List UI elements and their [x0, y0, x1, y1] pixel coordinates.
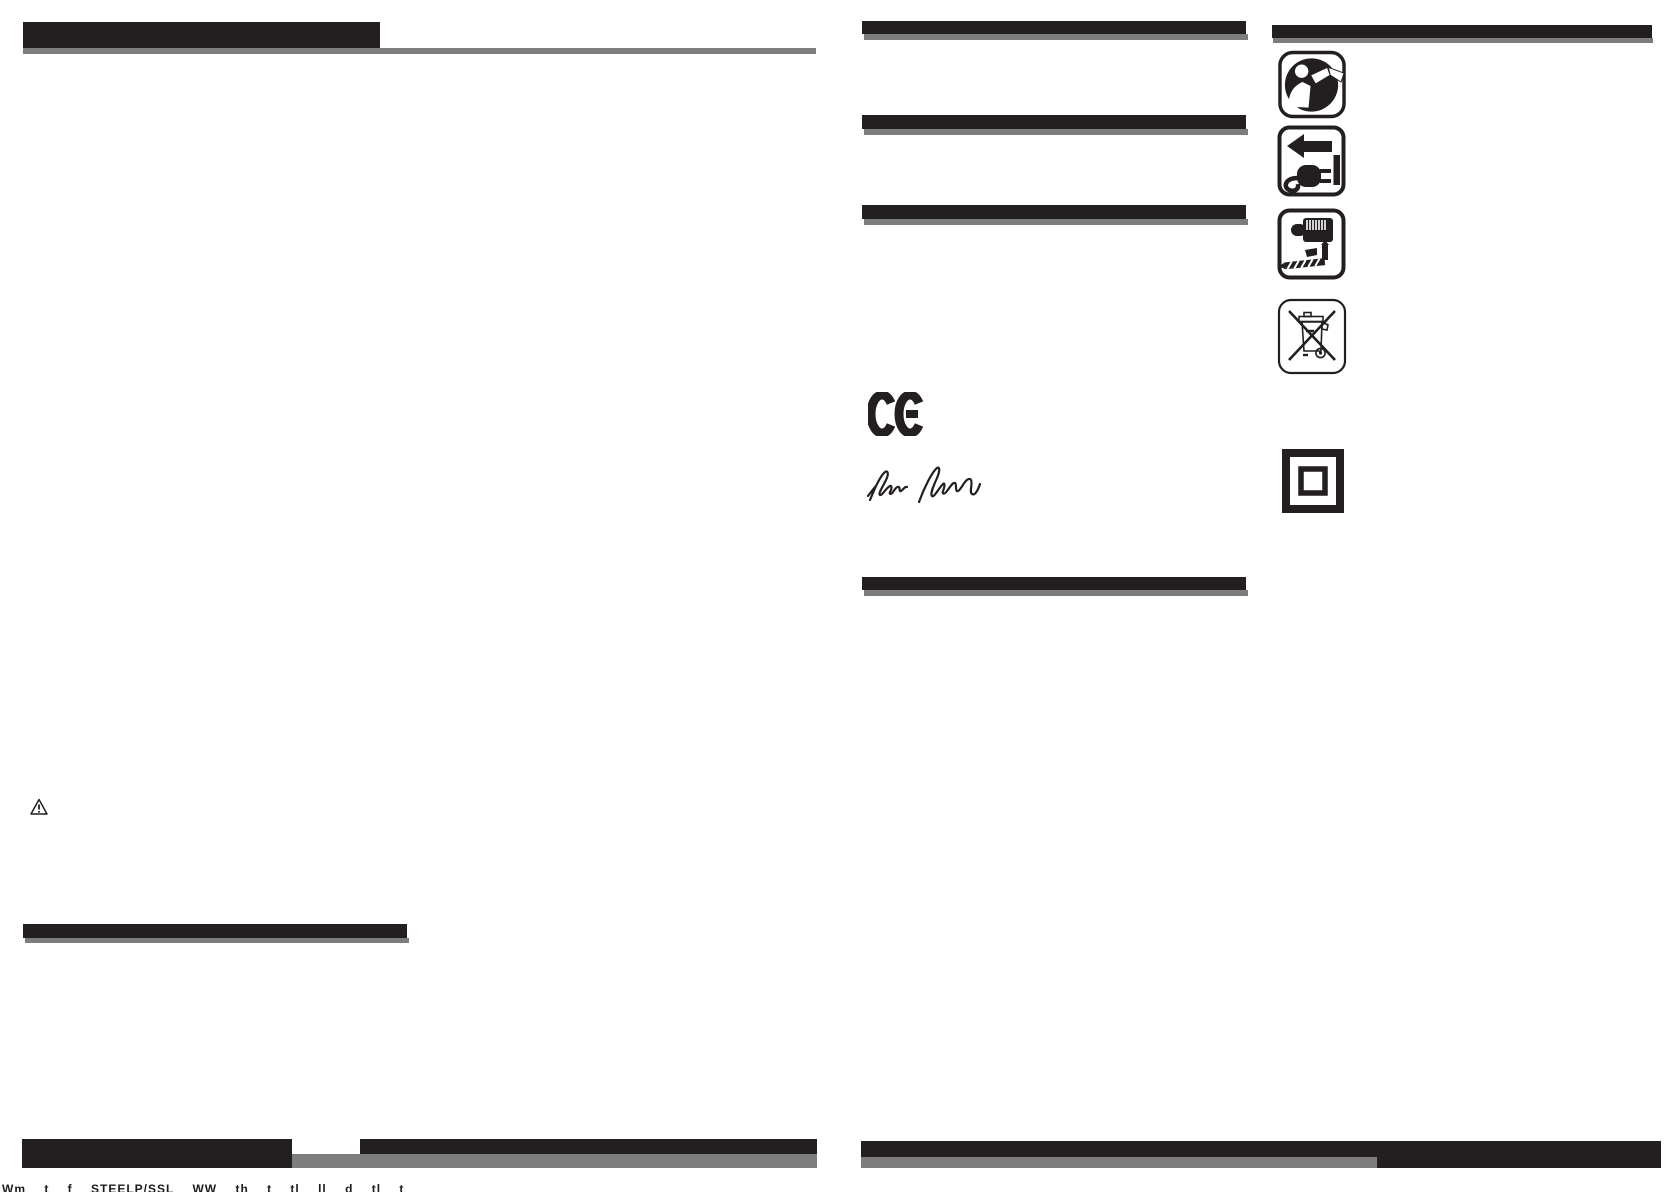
mid-section-bar-4: [862, 577, 1246, 590]
right-footer-gray-bar: [861, 1157, 1377, 1168]
left-footer-black-strip: [360, 1139, 817, 1155]
left-footer-gray-bar: [292, 1154, 817, 1168]
unplug-power-icon: [1277, 125, 1346, 197]
left-section-underline: [25, 938, 409, 943]
ce-mark-icon: [868, 392, 924, 436]
weee-crossed-bin-icon: [1277, 298, 1347, 375]
left-section-bar: [23, 924, 407, 938]
mid-section-bar-2-shadow: [864, 129, 1248, 135]
mid-section-bar-3-shadow: [864, 219, 1248, 225]
warning-triangle-icon: [29, 797, 49, 817]
mid-section-bar-1: [862, 21, 1246, 34]
left-footer-black-block: [22, 1139, 292, 1168]
signature-scribble: [864, 450, 986, 506]
right-header-bar-shadow: [1273, 38, 1653, 43]
clipped-text-line: Wm t f STEELP/SSL WW th t tl ll d tl t: [2, 1183, 542, 1192]
left-title-bar: [23, 22, 380, 48]
read-manual-icon: [1278, 50, 1346, 119]
right-footer-black-bar: [861, 1141, 1661, 1157]
left-title-underline: [23, 48, 816, 54]
mid-section-bar-4-shadow: [864, 590, 1248, 596]
manual-page: Wm t f STEELP/SSL WW th t tl ll d tl t: [0, 0, 1679, 1192]
right-header-bar: [1272, 25, 1652, 38]
mid-section-bar-2: [862, 115, 1246, 129]
right-footer-black-lower: [1377, 1157, 1661, 1168]
mid-section-bar-1-shadow: [864, 34, 1248, 40]
mid-section-bar-3: [862, 205, 1246, 219]
double-insulation-icon: [1278, 445, 1348, 517]
drill-chuck-accessories-icon: [1277, 208, 1346, 280]
